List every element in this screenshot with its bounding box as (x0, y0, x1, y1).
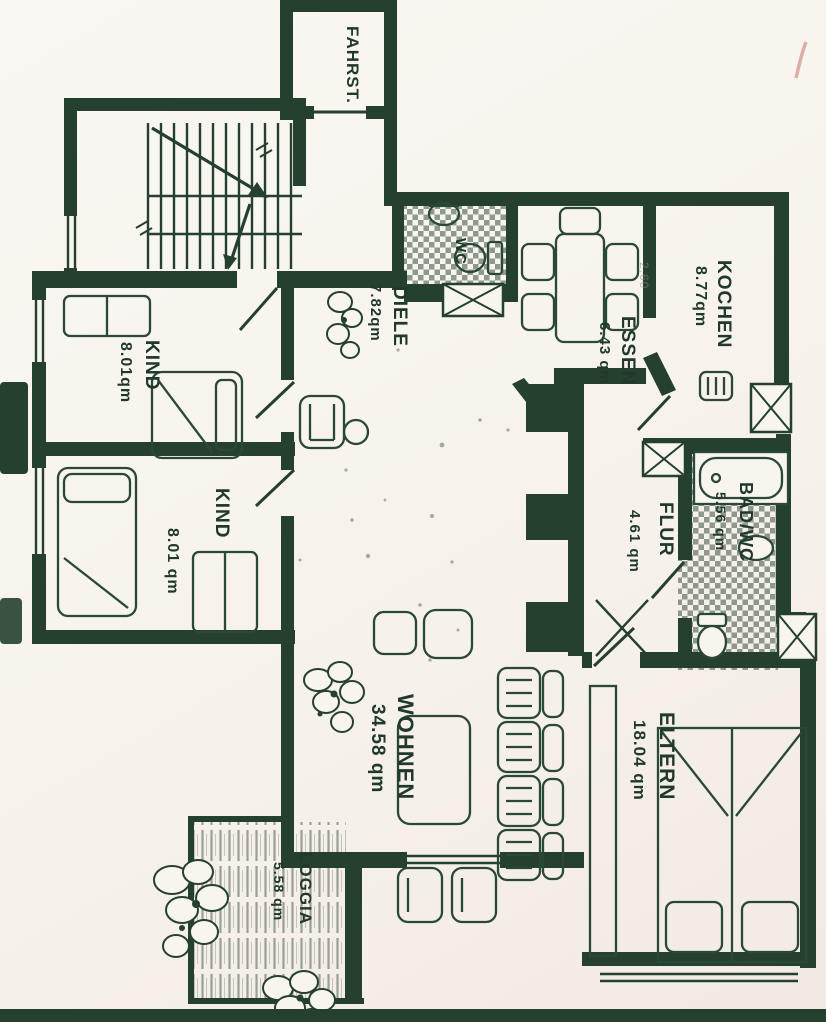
room-label-diele: DIELE (389, 286, 410, 347)
desk-icon (193, 552, 257, 632)
floor-plan-drawing: FAHRST. KIND 8.01qm KIND 8.01 qm DIELE 7… (0, 0, 826, 1022)
room-area-flur: 4.61 qm (626, 510, 643, 573)
entrance-door-icon (240, 288, 277, 330)
wardrobe-icon (590, 686, 616, 956)
bed-icon (58, 468, 136, 616)
wc-tile-floor (398, 206, 506, 290)
armchair-icon (398, 868, 442, 922)
room-label-kochen: KOCHEN (713, 260, 734, 348)
room-label-essen: ESSEN (617, 316, 638, 385)
room-area-kind-upper: 8.01qm (117, 342, 134, 403)
toilet-icon (698, 614, 726, 658)
room-label-wc: WC (452, 238, 469, 265)
scan-edge-bottom (0, 1009, 826, 1022)
scan-artifact-left (0, 598, 22, 644)
coffee-table-icon (374, 612, 416, 654)
window-eltern-icon (600, 974, 798, 981)
room-label-kind-lower: KIND (211, 488, 232, 538)
stove-icon (700, 372, 732, 400)
kind-lower-door-icon (256, 470, 294, 506)
room-label-fahrstuhl: FAHRST. (343, 26, 362, 104)
shaft-box-icon (443, 284, 503, 316)
kind-upper-door-icon (256, 382, 294, 418)
armchair-icon (300, 396, 344, 448)
room-label-kind-upper: KIND (141, 340, 162, 390)
scan-artifact-left (0, 382, 28, 474)
double-bed-icon (658, 728, 806, 962)
chair-icon (522, 244, 554, 280)
side-table-icon (344, 420, 368, 444)
room-area-kochen: 8.77qm (692, 266, 709, 327)
flur-door-cross-icon (596, 600, 648, 656)
kitchen-door-icon (638, 396, 670, 430)
window-kind-upper-icon (30, 300, 48, 362)
chair-icon (560, 208, 600, 234)
window-kind-lower-icon (30, 468, 48, 554)
room-label-wohnen: WOHNEN (393, 694, 418, 800)
coffee-table-icon (424, 610, 472, 658)
window-wohnen-icon (407, 856, 500, 863)
floor-plan-page: FAHRST. KIND 8.01qm KIND 8.01 qm DIELE 7… (0, 0, 826, 1022)
room-area-bad-wc: 5.56 qm (713, 492, 729, 551)
window-stairhall-icon (62, 216, 79, 268)
room-area-kind-lower: 8.01 qm (164, 528, 181, 595)
room-label-loggia: LOGGIA (296, 852, 315, 925)
plant-icon (327, 292, 362, 358)
stairs-icon (136, 123, 302, 270)
room-area-wohnen: 34.58 qm (367, 704, 388, 793)
window-box-kochen-icon (751, 384, 791, 432)
armchair-icon (452, 868, 496, 922)
red-pen-mark (796, 42, 806, 78)
room-label-flur: FLUR (655, 502, 676, 557)
room-area-diele: 7.82qm (367, 284, 384, 342)
room-area-eltern: 18.04 qm (630, 720, 649, 801)
shaft-box-icon (643, 442, 685, 476)
sofa-icon (498, 668, 563, 880)
room-area-loggia: 5.58 qm (271, 862, 287, 921)
plant-icon (304, 662, 364, 732)
pencil-dimension-note: 2,60 (637, 262, 651, 289)
chair-icon (606, 244, 638, 280)
wardrobe-icon (64, 296, 150, 336)
window-box-bad-icon (778, 614, 816, 660)
chair-icon (522, 294, 554, 330)
room-label-eltern: ELTERN (655, 712, 678, 800)
room-label-bad-wc: BAD/WC (736, 482, 756, 562)
room-area-essen: 6.43 qm (596, 322, 613, 385)
